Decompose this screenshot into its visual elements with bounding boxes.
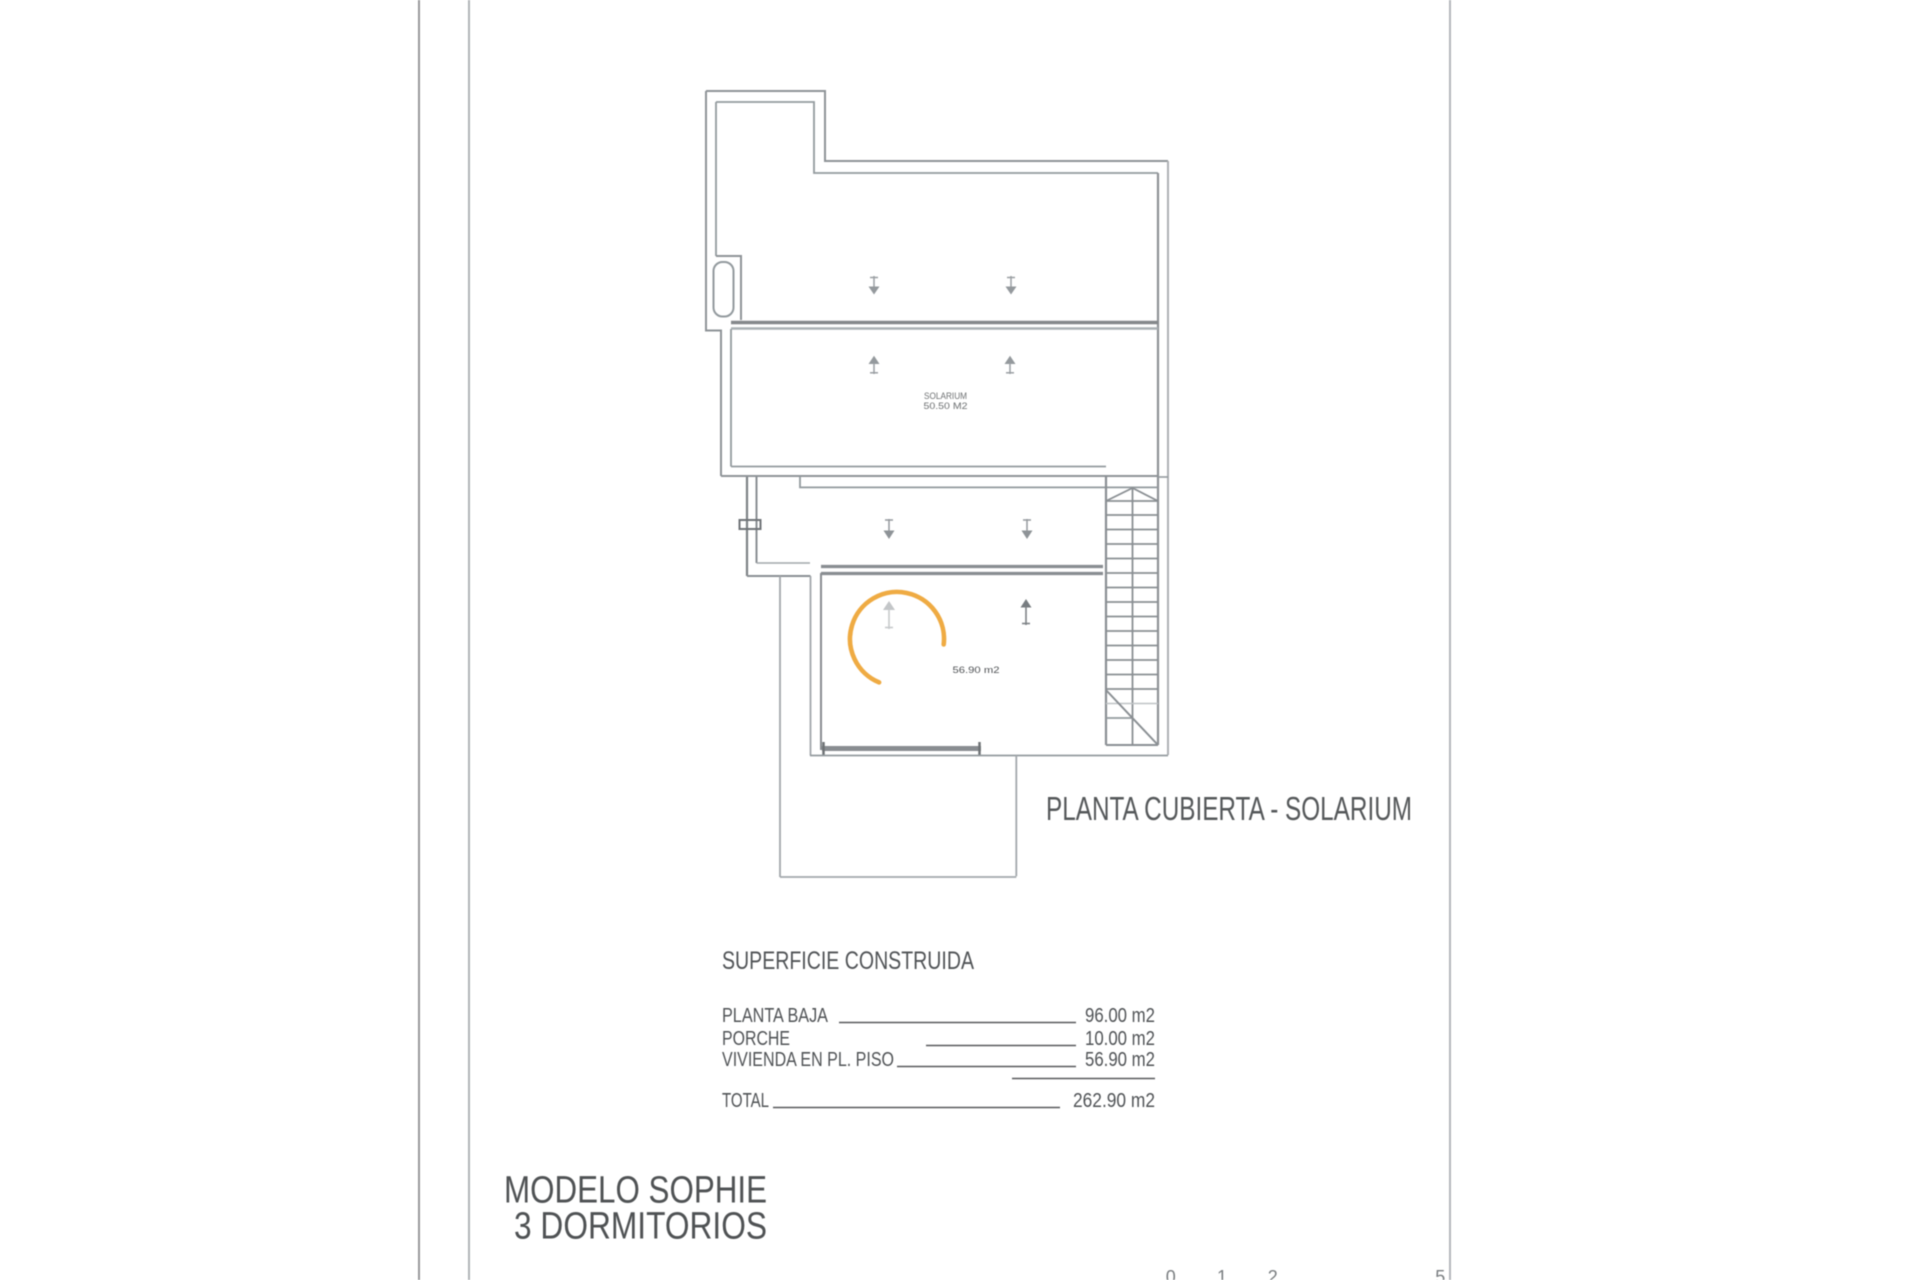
svg-text:PLANTA CUBIERTA - SOLARIUM: PLANTA CUBIERTA - SOLARIUM [1046, 790, 1412, 827]
svg-text:56.90 m2: 56.90 m2 [953, 665, 1000, 676]
svg-text:3 DORMITORIOS: 3 DORMITORIOS [514, 1206, 767, 1248]
svg-text:SOLARIUM: SOLARIUM [924, 391, 967, 401]
svg-text:50.50 M2: 50.50 M2 [924, 401, 968, 411]
svg-text:2: 2 [1268, 1267, 1278, 1280]
svg-text:PLANTA BAJA: PLANTA BAJA [722, 1005, 829, 1027]
svg-text:PORCHE: PORCHE [722, 1028, 790, 1050]
svg-text:0: 0 [1166, 1267, 1176, 1280]
svg-text:262.90 m2: 262.90 m2 [1073, 1090, 1155, 1112]
svg-text:96.00 m2: 96.00 m2 [1085, 1005, 1155, 1027]
svg-text:SUPERFICIE CONSTRUIDA: SUPERFICIE CONSTRUIDA [722, 947, 974, 975]
svg-text:10.00 m2: 10.00 m2 [1085, 1028, 1155, 1050]
svg-text:TOTAL: TOTAL [722, 1090, 769, 1112]
svg-text:5: 5 [1435, 1267, 1445, 1280]
svg-text:56.90 m2: 56.90 m2 [1085, 1049, 1155, 1071]
svg-text:1: 1 [1217, 1267, 1227, 1280]
svg-text:VIVIENDA EN PL. PISO: VIVIENDA EN PL. PISO [722, 1049, 894, 1071]
